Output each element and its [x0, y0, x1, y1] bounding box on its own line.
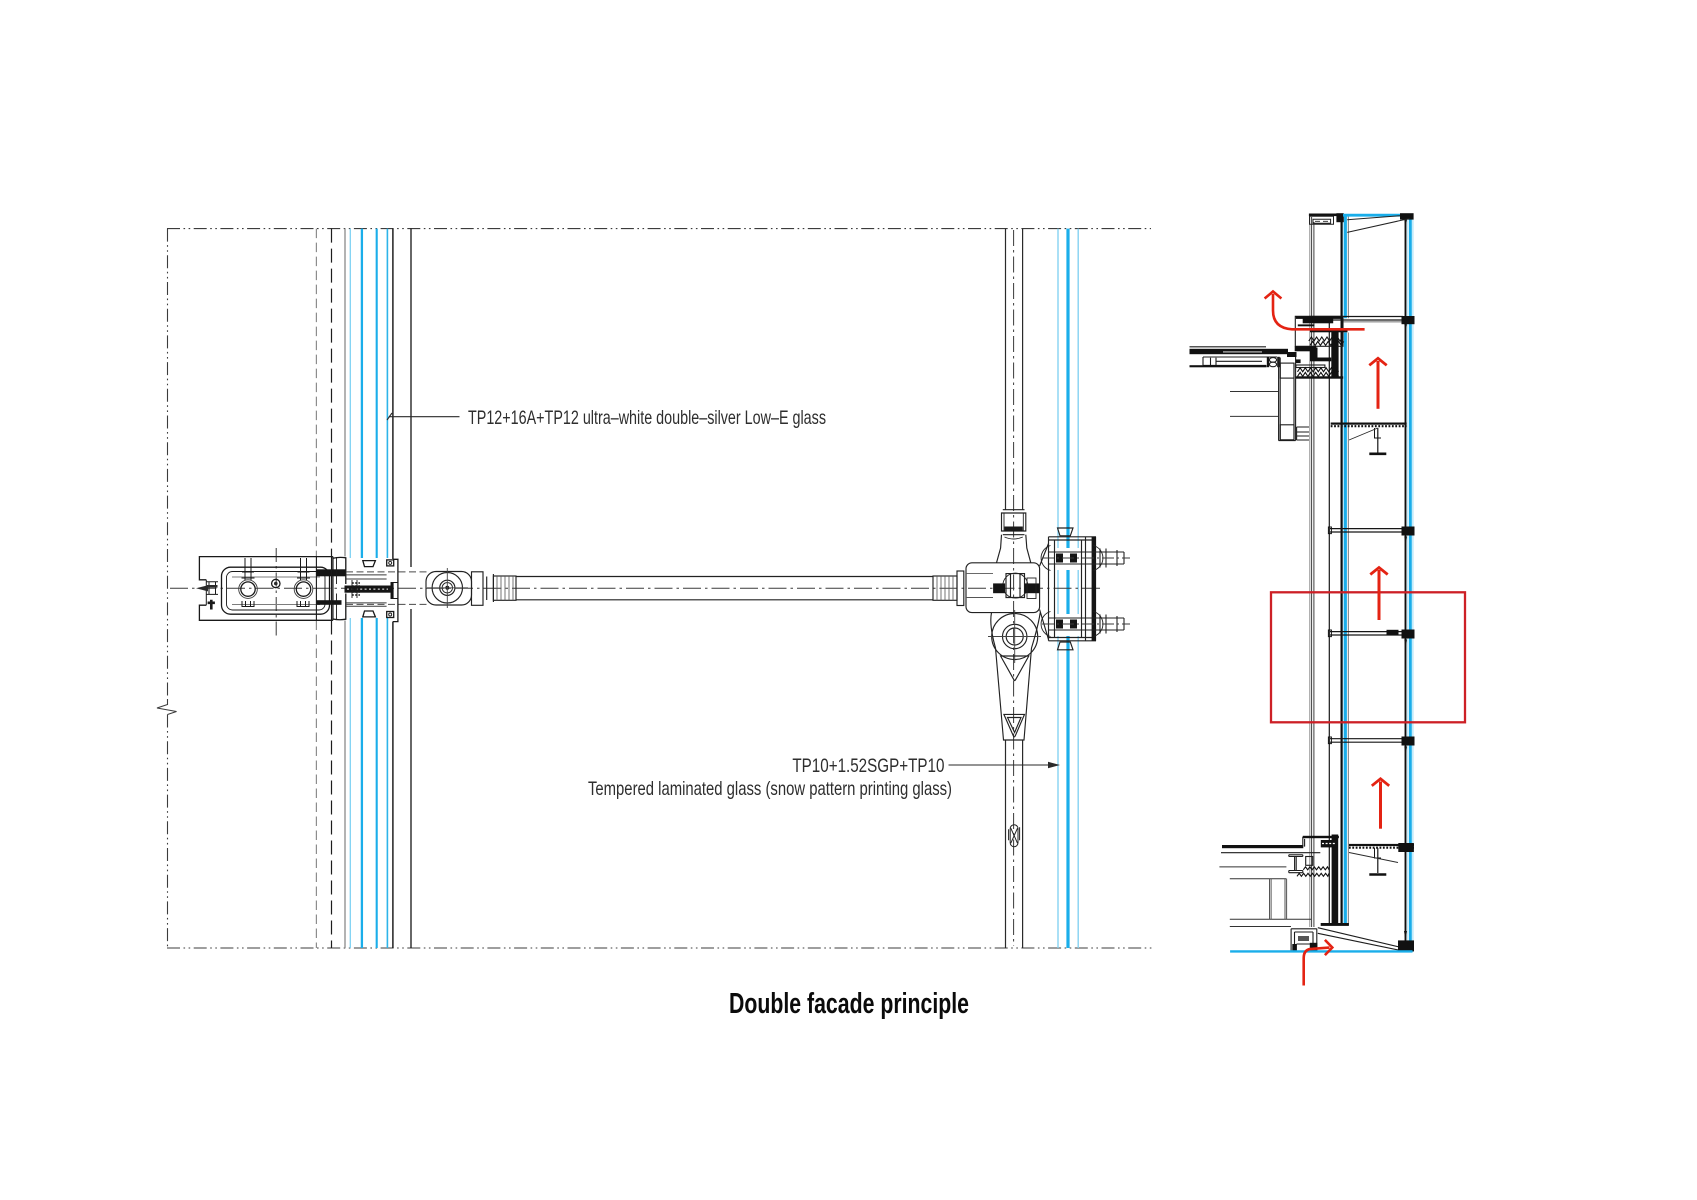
- svg-text:Double facade principle: Double facade principle: [729, 988, 969, 1020]
- svg-text:TP12+16A+TP12 ultra–white doub: TP12+16A+TP12 ultra–white double–silver …: [468, 407, 826, 429]
- svg-text:Tempered laminated glass (snow: Tempered laminated glass (snow pattern p…: [588, 778, 952, 800]
- svg-text:TP10+1.52SGP+TP10: TP10+1.52SGP+TP10: [792, 755, 944, 777]
